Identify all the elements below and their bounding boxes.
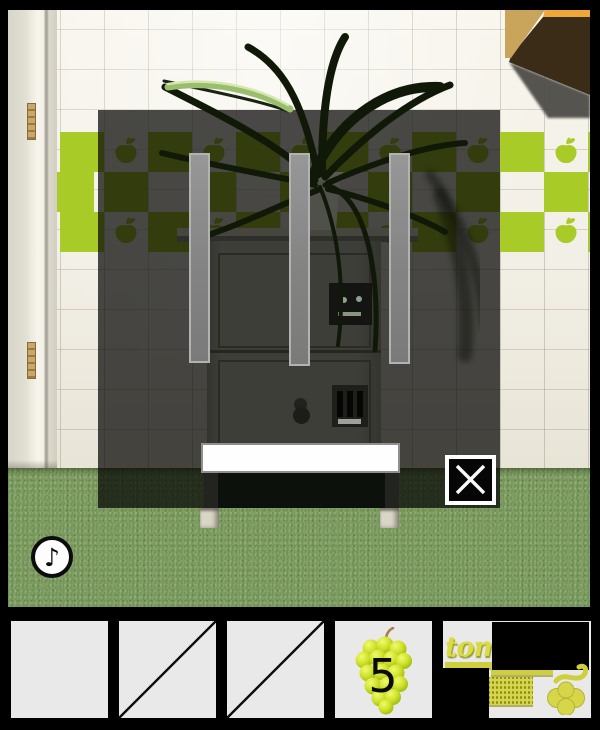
vent-panel[interactable] bbox=[332, 385, 368, 427]
credit-stamp bbox=[489, 677, 533, 705]
game-window: ♪ bbox=[0, 0, 600, 730]
puzzle-bar-1[interactable] bbox=[189, 153, 210, 363]
close-icon bbox=[449, 459, 492, 501]
grape-count: 5 bbox=[361, 649, 405, 703]
door-hinge-bottom bbox=[27, 342, 36, 379]
cabinet-foot-right bbox=[380, 508, 399, 528]
kitchen-door[interactable] bbox=[8, 10, 57, 470]
puzzle-bar-3[interactable] bbox=[389, 153, 410, 364]
inventory-slot-5-credit[interactable]: tom bbox=[443, 621, 591, 718]
inventory-slot-2[interactable] bbox=[119, 621, 216, 718]
apple-tile-icon bbox=[553, 216, 579, 244]
censor-block-bottom bbox=[443, 668, 489, 718]
puzzle-bar-2[interactable] bbox=[289, 153, 310, 366]
inventory-bar: 5 tom bbox=[0, 607, 600, 730]
vent-slot bbox=[338, 419, 361, 424]
cabinet-foot-left bbox=[200, 508, 219, 528]
cabinet-leg-right bbox=[385, 473, 399, 508]
inventory-slot-3[interactable] bbox=[227, 621, 324, 718]
inventory-slot-4-grapes[interactable]: 5 bbox=[335, 621, 432, 718]
credit-grape-icon bbox=[543, 661, 589, 715]
cabinet-knob-base bbox=[293, 407, 310, 424]
music-note-icon: ♪ bbox=[44, 543, 60, 572]
music-toggle-button[interactable]: ♪ bbox=[31, 536, 73, 578]
inventory-slot-1[interactable] bbox=[11, 621, 108, 718]
apple-tile-icon bbox=[553, 136, 579, 164]
cabinet-leg-left bbox=[204, 473, 218, 508]
kitchen-scene: ♪ bbox=[8, 10, 590, 607]
close-button[interactable] bbox=[445, 455, 496, 505]
drawer-slot-bar[interactable] bbox=[201, 443, 400, 473]
under-cabinet-shadow bbox=[218, 473, 385, 508]
door-hinge-top bbox=[27, 103, 36, 140]
cabinet-wood-edge bbox=[543, 10, 590, 17]
